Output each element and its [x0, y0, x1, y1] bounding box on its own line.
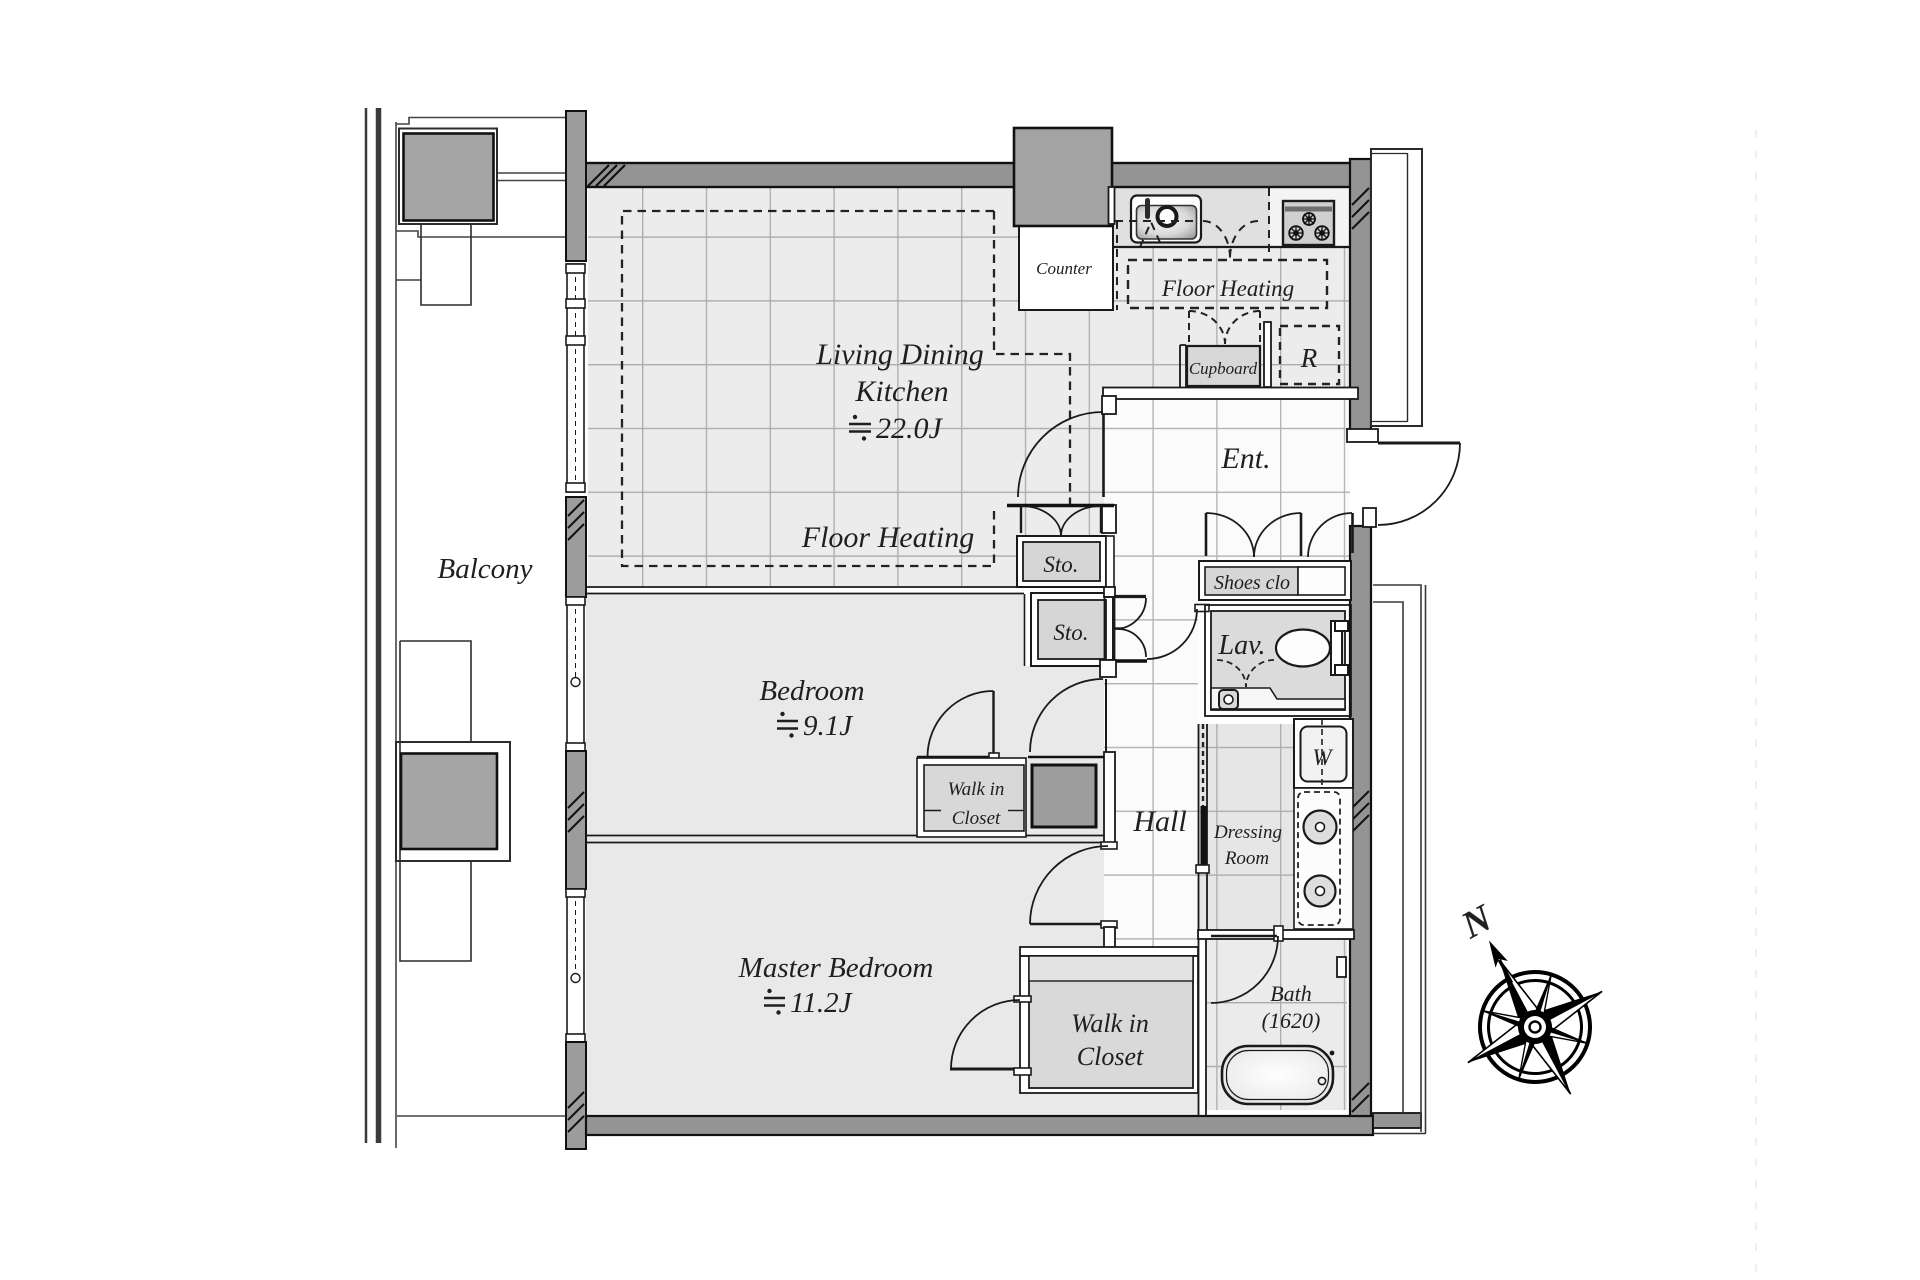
svg-text:Closet: Closet: [952, 808, 1001, 829]
svg-text:Sto.: Sto.: [1043, 552, 1078, 577]
svg-text:Floor Heating: Floor Heating: [1161, 276, 1294, 301]
svg-text:Closet: Closet: [1077, 1042, 1144, 1071]
svg-text:11.2J: 11.2J: [790, 987, 853, 1019]
svg-text:Master Bedroom: Master Bedroom: [738, 952, 934, 984]
svg-text:Sto.: Sto.: [1053, 620, 1088, 645]
svg-text:Ent.: Ent.: [1220, 442, 1270, 475]
svg-text:Bedroom: Bedroom: [759, 675, 864, 707]
svg-text:Room: Room: [1224, 848, 1269, 869]
svg-text:Kitchen: Kitchen: [854, 375, 948, 408]
svg-text:W: W: [1312, 745, 1333, 770]
svg-text:R: R: [1300, 343, 1318, 373]
svg-text:Lav.: Lav.: [1218, 630, 1266, 661]
svg-text:Floor Heating: Floor Heating: [801, 521, 975, 554]
svg-text:(1620): (1620): [1262, 1008, 1321, 1033]
svg-text:22.0J: 22.0J: [876, 412, 944, 445]
svg-text:Living Dining: Living Dining: [815, 338, 984, 371]
svg-text:Bath: Bath: [1270, 981, 1312, 1006]
svg-text:Balcony: Balcony: [437, 553, 532, 585]
svg-text:Dressing: Dressing: [1213, 822, 1282, 843]
svg-text:9.1J: 9.1J: [803, 710, 853, 742]
svg-text:Walk in: Walk in: [1071, 1009, 1149, 1038]
svg-text:Counter: Counter: [1036, 259, 1092, 278]
svg-text:Shoes clo: Shoes clo: [1214, 572, 1290, 594]
svg-text:Walk in: Walk in: [948, 779, 1005, 800]
svg-text:Cupboard: Cupboard: [1189, 359, 1258, 378]
svg-text:Hall: Hall: [1132, 805, 1186, 838]
